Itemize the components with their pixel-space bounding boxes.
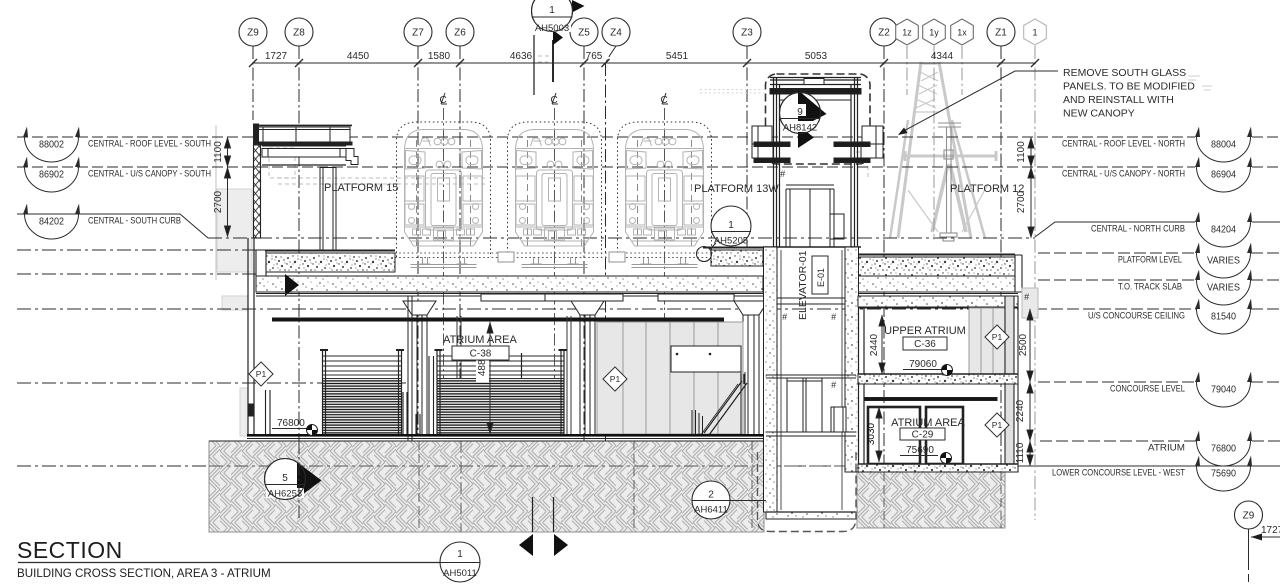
- svg-text:79060: 79060: [909, 359, 937, 370]
- svg-text:U/S CONCOURSE CEILING: U/S CONCOURSE CEILING: [1088, 311, 1185, 321]
- svg-text:CENTRAL - U/S CANOPY - NORTH: CENTRAL - U/S CANOPY - NORTH: [1062, 169, 1185, 179]
- svg-text:T.O. TRACK SLAB: T.O. TRACK SLAB: [1118, 282, 1182, 292]
- svg-text:PANELS. TO BE MODIFIED: PANELS. TO BE MODIFIED: [1063, 81, 1195, 93]
- svg-text:Z2: Z2: [878, 28, 890, 39]
- svg-text:2500: 2500: [1018, 333, 1029, 356]
- svg-text:88004: 88004: [1211, 140, 1236, 151]
- svg-text:REMOVE SOUTH GLASS: REMOVE SOUTH GLASS: [1063, 67, 1186, 79]
- svg-text:PLATFORM 15: PLATFORM 15: [324, 182, 398, 194]
- svg-text:75690: 75690: [1211, 469, 1236, 480]
- svg-text:5053: 5053: [805, 51, 828, 62]
- svg-text:2240: 2240: [1015, 399, 1026, 422]
- svg-text:2440: 2440: [869, 333, 880, 356]
- svg-text:84202: 84202: [39, 217, 64, 228]
- svg-text:1: 1: [728, 220, 734, 231]
- svg-text:5: 5: [282, 473, 288, 484]
- svg-text:2700: 2700: [213, 190, 224, 213]
- svg-text:84204: 84204: [1211, 225, 1236, 236]
- svg-text:CENTRAL - SOUTH CURB: CENTRAL - SOUTH CURB: [88, 216, 181, 226]
- svg-text:BUILDING CROSS SECTION, AREA 3: BUILDING CROSS SECTION, AREA 3 - ATRIUM: [17, 567, 271, 580]
- svg-text:Z6: Z6: [454, 28, 466, 39]
- svg-text:86904: 86904: [1211, 170, 1236, 181]
- svg-text:81540: 81540: [1211, 312, 1236, 323]
- svg-text:79040: 79040: [1211, 385, 1236, 396]
- svg-text:3030: 3030: [866, 422, 877, 445]
- svg-text:1580: 1580: [428, 51, 451, 62]
- svg-text:AH5011: AH5011: [443, 568, 477, 579]
- svg-text:ATRIUM AREA: ATRIUM AREA: [443, 334, 517, 346]
- svg-text:C-38: C-38: [470, 349, 492, 360]
- svg-text:Z3: Z3: [741, 28, 753, 39]
- svg-text:1z: 1z: [902, 28, 912, 38]
- svg-text:Z9: Z9: [247, 28, 259, 39]
- svg-text:C-36: C-36: [914, 339, 936, 350]
- svg-text:1727: 1727: [1261, 525, 1280, 536]
- svg-text:AH5205: AH5205: [714, 236, 748, 247]
- svg-text:1: 1: [1032, 28, 1037, 38]
- svg-text:CENTRAL - NORTH CURB: CENTRAL - NORTH CURB: [1091, 224, 1185, 234]
- svg-text:4344: 4344: [931, 51, 954, 62]
- svg-text:ELEVATOR-01: ELEVATOR-01: [797, 250, 809, 320]
- svg-text:AH6411: AH6411: [694, 505, 728, 516]
- svg-text:76800: 76800: [1211, 444, 1236, 455]
- svg-text:PLATFORM LEVEL: PLATFORM LEVEL: [1118, 255, 1182, 265]
- svg-text:VARIES: VARIES: [1207, 283, 1240, 294]
- svg-text:CENTRAL - ROOF LEVEL - SOUTH: CENTRAL - ROOF LEVEL - SOUTH: [88, 139, 211, 149]
- svg-text:Z7: Z7: [412, 28, 424, 39]
- svg-text:Z9: Z9: [1243, 511, 1255, 522]
- svg-text:VARIES: VARIES: [1207, 256, 1240, 267]
- svg-text:4636: 4636: [510, 51, 533, 62]
- svg-text:SECTION: SECTION: [17, 537, 123, 563]
- svg-text:1y: 1y: [929, 28, 939, 38]
- svg-text:CENTRAL - ROOF LEVEL - NORTH: CENTRAL - ROOF LEVEL - NORTH: [1062, 139, 1185, 149]
- svg-text:AH5003: AH5003: [535, 23, 569, 34]
- svg-text:Z5: Z5: [578, 28, 590, 39]
- svg-text:1100: 1100: [213, 141, 224, 163]
- svg-text:9: 9: [797, 107, 803, 118]
- svg-text:1110: 1110: [1015, 442, 1026, 463]
- svg-text:CONCOURSE LEVEL: CONCOURSE LEVEL: [1110, 384, 1185, 394]
- svg-text:Z1: Z1: [995, 28, 1007, 39]
- svg-text:5451: 5451: [666, 51, 689, 62]
- svg-text:C-29: C-29: [912, 430, 934, 441]
- svg-text:NEW CANOPY: NEW CANOPY: [1063, 108, 1135, 120]
- svg-text:1: 1: [549, 5, 555, 16]
- svg-text:76800: 76800: [277, 418, 305, 429]
- svg-text:AH6253: AH6253: [268, 489, 302, 500]
- svg-text:CENTRAL - U/S CANOPY - SOUTH: CENTRAL - U/S CANOPY - SOUTH: [88, 169, 211, 179]
- svg-text:Z4: Z4: [610, 28, 622, 39]
- svg-text:PLATFORM 13W: PLATFORM 13W: [694, 183, 779, 195]
- svg-text:E-01: E-01: [816, 268, 826, 287]
- svg-text:AH8142: AH8142: [783, 123, 817, 134]
- svg-text:86902: 86902: [39, 170, 64, 181]
- svg-text:765: 765: [586, 51, 603, 62]
- svg-text:PLATFORM 12: PLATFORM 12: [950, 183, 1024, 195]
- svg-text:1727: 1727: [265, 51, 288, 62]
- svg-text:UPPER ATRIUM: UPPER ATRIUM: [884, 325, 966, 337]
- svg-text:1: 1: [457, 549, 463, 560]
- svg-text:4450: 4450: [347, 51, 370, 62]
- svg-text:1100: 1100: [1016, 141, 1027, 163]
- svg-text:2: 2: [708, 490, 714, 501]
- svg-text:LOWER CONCOURSE LEVEL - WEST: LOWER CONCOURSE LEVEL - WEST: [1052, 468, 1185, 478]
- svg-text:1x: 1x: [957, 28, 967, 38]
- svg-text:AND REINSTALL WITH: AND REINSTALL WITH: [1063, 94, 1174, 106]
- svg-text:88002: 88002: [39, 140, 64, 151]
- svg-text:Z8: Z8: [293, 28, 305, 39]
- svg-text:ATRIUM: ATRIUM: [1148, 443, 1185, 453]
- svg-text:75690: 75690: [906, 445, 934, 456]
- svg-text:ATRIUM AREA: ATRIUM AREA: [891, 417, 965, 429]
